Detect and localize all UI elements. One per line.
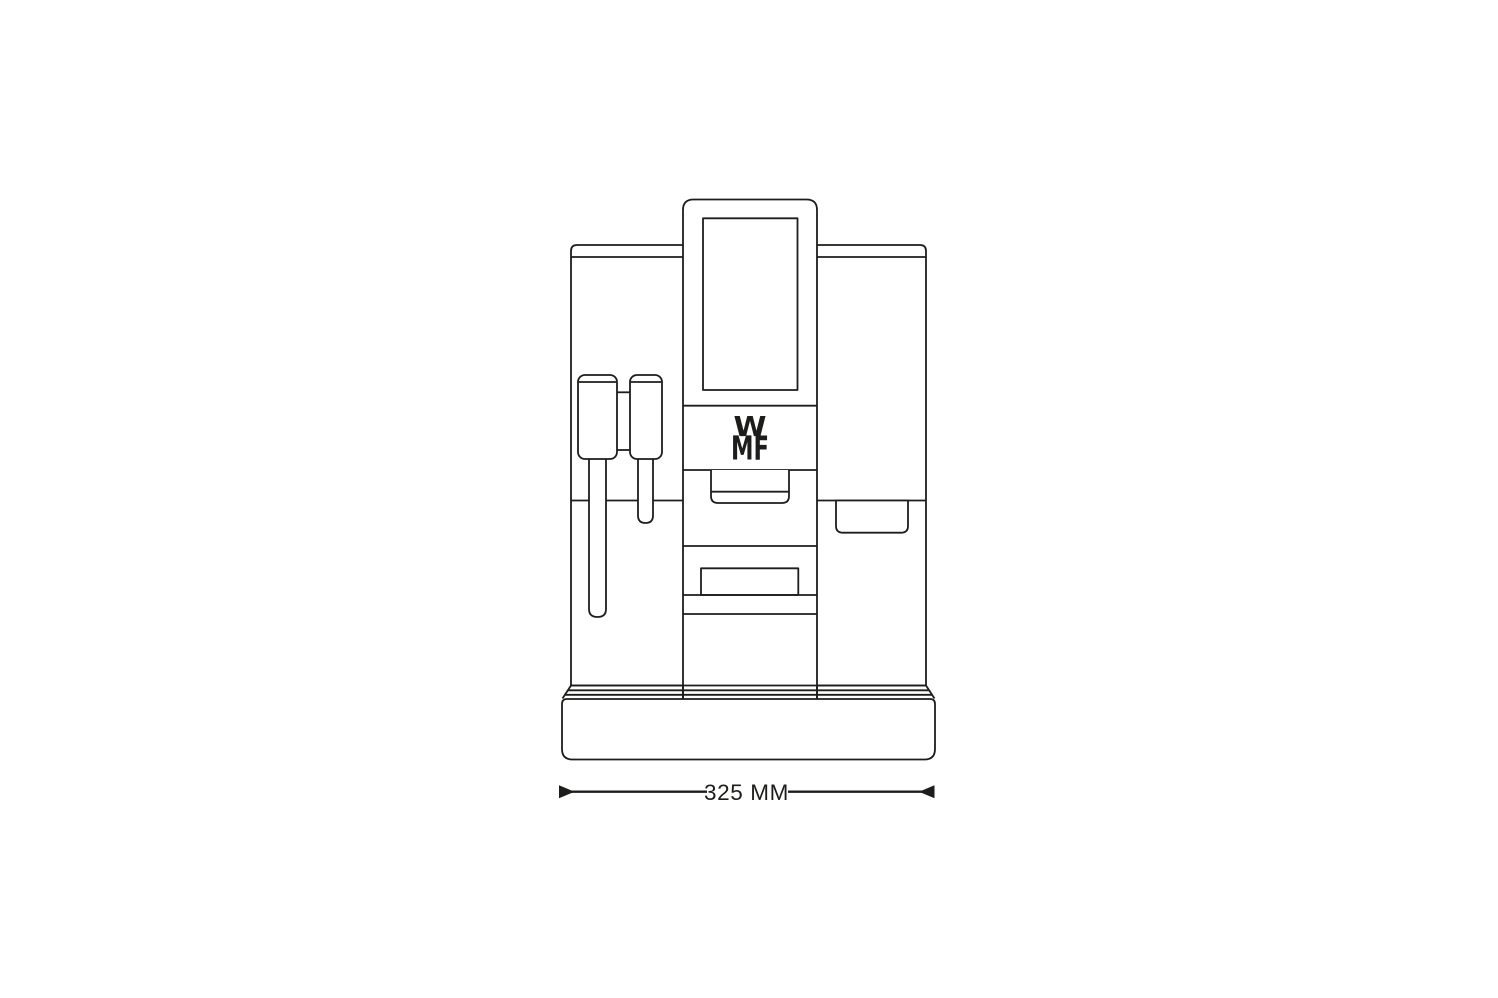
- wmf-logo-bottom: MF: [731, 429, 769, 468]
- plinth-left-edge: [563, 686, 572, 699]
- dimension-annotation: 325 MM: [559, 780, 935, 805]
- left-side-panel: [571, 245, 683, 686]
- coffee-spout: [711, 470, 789, 503]
- right-side-panel-group: [817, 245, 926, 686]
- cup-platform: [701, 568, 798, 595]
- left-side-panel-group: [571, 245, 683, 686]
- dimension-arrow-left-icon: [559, 785, 575, 798]
- dispenser-tube-long: [589, 458, 606, 617]
- base-drip-tray: [562, 699, 935, 760]
- right-side-tray: [836, 501, 908, 533]
- plinth-right-edge: [926, 686, 935, 699]
- dimension-arrow-right-icon: [919, 785, 935, 798]
- dispenser-right-body: [630, 375, 662, 459]
- dimension-label: 325 MM: [704, 780, 789, 805]
- wmf-logo: W MF: [731, 410, 769, 468]
- page: W MF 325 MM: [0, 0, 1498, 998]
- dispenser-tube-short: [638, 458, 653, 523]
- machine-line-drawing: W MF 325 MM: [0, 0, 1498, 998]
- right-side-panel: [817, 245, 926, 686]
- dispenser-left-body: [578, 375, 617, 459]
